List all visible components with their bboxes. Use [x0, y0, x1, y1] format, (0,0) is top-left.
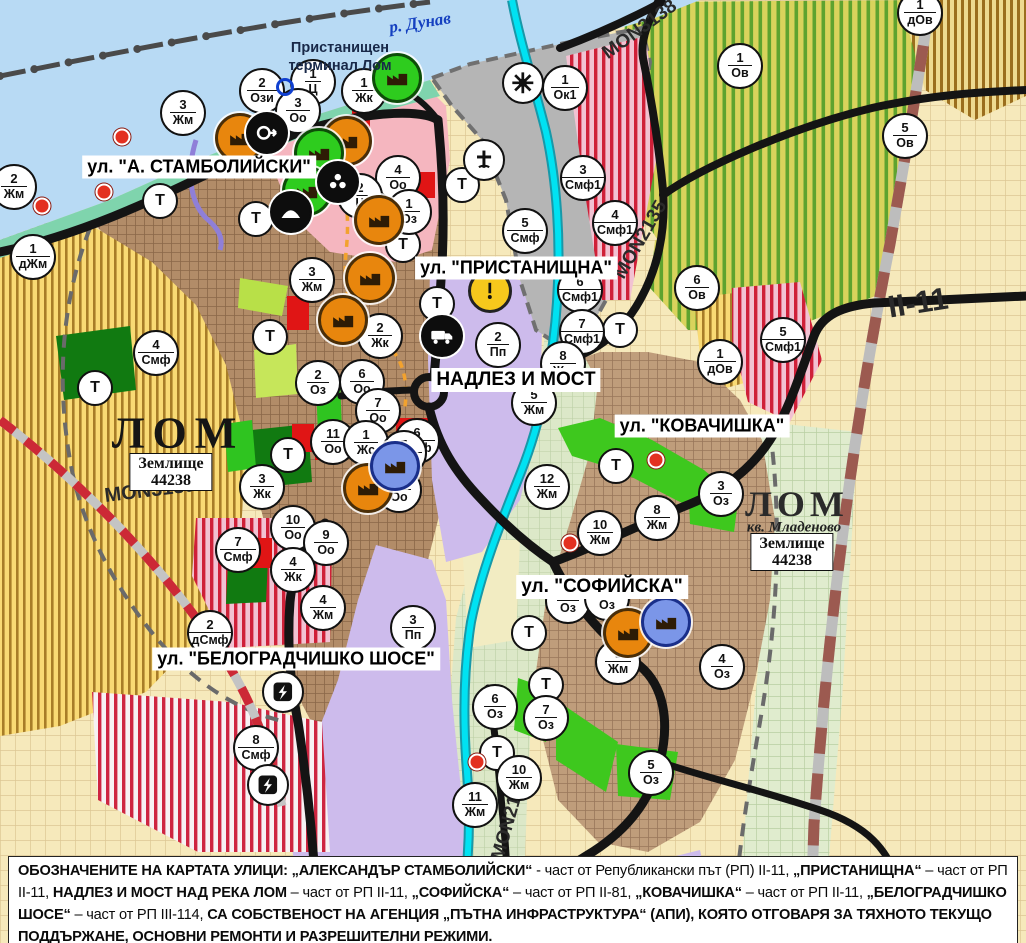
zone-marker-number: 11 — [468, 790, 482, 804]
zone-marker-code: Оз — [711, 666, 733, 682]
zone-marker-number: 3 — [294, 96, 301, 110]
zone-marker: 5Ов — [882, 113, 928, 159]
zone-marker-number: 3 — [179, 98, 186, 112]
zone-marker-code: Оз — [557, 600, 579, 616]
zone-marker: 4Смф1 — [592, 200, 638, 246]
zone-marker: 1Ов — [717, 43, 763, 89]
transport-marker: Т — [238, 201, 274, 237]
ownership-note-segment: „КОВАЧИШКА“ — [635, 885, 742, 901]
zone-marker-code: Жм — [170, 112, 197, 128]
zone-marker: 1дОв — [897, 0, 943, 36]
zone-marker-number: 4 — [152, 338, 159, 352]
zone-marker-number: 7 — [234, 535, 241, 549]
zone-marker-code: Ов — [893, 135, 916, 151]
zone-marker-code: Оо — [314, 542, 337, 558]
street-label: ул. "КОВАЧИШКА" — [615, 415, 790, 438]
transport-marker: Т — [598, 448, 634, 484]
land-unit-box-east: Землище 44238 — [750, 533, 833, 571]
zone-marker-number: 8 — [252, 733, 259, 747]
zone-marker-number: 5 — [521, 216, 528, 230]
zone-marker-number: 1 — [716, 347, 723, 361]
red-dot-icon — [562, 535, 579, 552]
ownership-note-segment: „ПРИСТАНИЩНА“ — [793, 863, 921, 879]
red-dot-icon — [648, 452, 665, 469]
zone-marker-code: Ов — [685, 287, 708, 303]
street-label: ул. "А. СТАМБОЛИЙСКИ" — [82, 156, 316, 179]
factory-orange-icon — [354, 195, 404, 245]
zone-marker-number: 4 — [718, 652, 725, 666]
zone-marker-number: 7 — [374, 396, 381, 410]
zone-marker: 10Жм — [496, 755, 542, 801]
road-number-label: MON3138 — [599, 0, 682, 64]
land-unit-east-line2: 44238 — [759, 552, 824, 569]
zone-marker-number: 2 — [494, 330, 501, 344]
ownership-note-segment: НАДЛЕЗ И МОСТ НАД РЕКА ЛОМ — [53, 885, 287, 901]
zone-marker-number: 5 — [901, 121, 908, 135]
zone-marker-number: 3 — [717, 479, 724, 493]
zone-marker-code: дОв — [704, 361, 735, 377]
zone-marker-code: Смф — [220, 549, 255, 565]
land-unit-east-line1: Землище — [759, 535, 824, 552]
ownership-note-segment: – част от РП III-114, — [71, 907, 208, 923]
ownership-note-segment: „СОФИЙСКА“ — [412, 885, 510, 901]
factory-orange-icon — [345, 253, 395, 303]
city-lom-label: ЛОМ — [112, 408, 245, 459]
zone-marker-code: Оз — [640, 772, 662, 788]
land-unit-west-line1: Землище — [138, 455, 203, 472]
zone-marker-code: Оз — [484, 706, 506, 722]
zone-marker-number: 2 — [314, 368, 321, 382]
street-label: ул. "ПРИСТАНИЩНА" — [415, 257, 617, 280]
street-label: НАДЛЕЗ И МОСТ — [431, 368, 600, 392]
arrow-icon — [246, 112, 288, 154]
zone-marker: 7Оз — [523, 695, 569, 741]
zone-marker-number: 1 — [362, 428, 369, 442]
zone-marker-number: 2 — [258, 76, 265, 90]
zone-marker-code: Оо — [286, 110, 309, 126]
truck-icon — [421, 315, 463, 357]
zone-marker-number: 11 — [326, 427, 340, 441]
zone-marker-number: 1 — [405, 197, 412, 211]
ownership-note: ОБОЗНАЧЕНИТЕ НА КАРТАТА УЛИЦИ: „АЛЕКСАНД… — [8, 856, 1018, 943]
zone-marker-code: Пп — [487, 344, 510, 360]
zone-marker-code: Оо — [321, 441, 344, 457]
port-terminal-label: Пристанищен терминал Лом — [288, 39, 391, 75]
zone-marker-number: 1 — [360, 76, 367, 90]
zone-marker: 3Оз — [698, 471, 744, 517]
zone-marker-code: Жм — [299, 279, 326, 295]
zone-marker: 4Жм — [300, 585, 346, 631]
zone-marker: 1Ок1 — [542, 65, 588, 111]
zone-marker: 4Жк — [270, 547, 316, 593]
zone-marker-number: 6 — [491, 692, 498, 706]
map-canvas[interactable]: р. Дунав Пристанищен терминал Лом ЛОМ ЛО… — [0, 0, 1026, 943]
zone-marker: 12Жм — [524, 464, 570, 510]
zone-marker-code: Пп — [402, 627, 425, 643]
transport-marker: Т — [252, 319, 288, 355]
zone-marker-number: 10 — [286, 513, 300, 527]
zone-marker: 2Пп — [475, 322, 521, 368]
zone-marker: 3Жк — [239, 464, 285, 510]
sun-icon — [502, 62, 544, 104]
zone-marker-code: Жк — [352, 90, 376, 106]
zone-marker-code: Жм — [534, 486, 561, 502]
zone-marker-code: Жк — [281, 569, 305, 585]
zone-marker: 2Оз — [295, 360, 341, 406]
zone-marker-code: дЖм — [16, 256, 50, 272]
transport-marker: Т — [77, 370, 113, 406]
zone-marker-code: Жк — [368, 335, 392, 351]
zone-marker-code: Смф1 — [594, 222, 636, 238]
zone-marker-code: Жм — [1, 186, 28, 202]
road-number-label: II-11 — [885, 281, 950, 326]
zone-marker: 3Пп — [390, 605, 436, 651]
ownership-note-segment: – част от РП II-11, — [742, 885, 867, 901]
zone-marker-code: Оз — [307, 382, 329, 398]
zone-marker: 1дЖм — [10, 234, 56, 280]
zone-marker-number: 6 — [693, 273, 700, 287]
zone-marker-code: Смф — [238, 747, 273, 763]
zone-marker: 3Смф1 — [560, 155, 606, 201]
zone-marker: 4Смф — [133, 330, 179, 376]
zone-marker-number: 3 — [308, 265, 315, 279]
zone-marker-number: 5 — [779, 325, 786, 339]
zone-marker-code: Жм — [605, 661, 632, 677]
zone-marker-code: Смф1 — [562, 177, 604, 193]
zone-marker-code: Жм — [521, 402, 548, 418]
port-terminal-line2: терминал Лом — [288, 57, 391, 75]
zone-marker-number: 3 — [258, 472, 265, 486]
zone-marker-number: 7 — [578, 317, 585, 331]
zone-marker-number: 1 — [561, 73, 568, 87]
zone-marker: 5Смф1 — [760, 317, 806, 363]
zone-marker-code: Жк — [250, 486, 274, 502]
zone-marker-code: Жм — [506, 777, 533, 793]
zone-marker-code: Оо — [281, 527, 304, 543]
zone-marker-code: Смф — [507, 230, 542, 246]
zone-marker: 5Оз — [628, 750, 674, 796]
street-label: ул. "СОФИЙСКА" — [516, 575, 688, 599]
transport-marker: Т — [602, 312, 638, 348]
red-dot-icon — [34, 198, 51, 215]
ownership-note-segment: - част от Републикански път (РП) II-11, — [532, 863, 793, 879]
red-dot-icon — [96, 184, 113, 201]
lightning-icon — [247, 764, 289, 806]
zone-marker-number: 5 — [647, 758, 654, 772]
chevron-icon — [270, 191, 312, 233]
zone-marker-number: 8 — [559, 349, 566, 363]
zone-marker-number: 1 — [29, 242, 36, 256]
zone-marker-number: 2 — [376, 321, 383, 335]
zone-marker-number: 10 — [593, 518, 607, 532]
zone-marker: 11Жм — [452, 782, 498, 828]
zone-marker-code: дСмф — [189, 632, 232, 648]
zone-marker-number: 2 — [206, 618, 213, 632]
zone-marker: 3Жм — [289, 257, 335, 303]
zone-marker-code: Жм — [462, 804, 489, 820]
zone-marker-code: Оз — [710, 493, 732, 509]
zone-marker: 5Смф — [502, 208, 548, 254]
red-dot-icon — [114, 129, 131, 146]
zone-marker-code: Ов — [728, 65, 751, 81]
zone-marker: 6Ов — [674, 265, 720, 311]
zone-marker-code: дОв — [904, 12, 935, 28]
blue-ring-icon — [276, 78, 294, 96]
zone-marker-number: 8 — [653, 503, 660, 517]
zone-marker: 1дОв — [697, 339, 743, 385]
zone-marker: 10Жм — [577, 510, 623, 556]
zone-marker-code: Смф — [138, 352, 173, 368]
ownership-note-segment: ОБОЗНАЧЕНИТЕ НА КАРТАТА УЛИЦИ: „АЛЕКСАНД… — [18, 863, 532, 879]
zone-marker-number: 6 — [358, 367, 365, 381]
zone-marker-code: Ози — [247, 90, 277, 106]
red-dot-icon — [469, 754, 486, 771]
zone-marker-number: 2 — [10, 172, 17, 186]
zone-marker-number: 1 — [916, 0, 923, 12]
zone-marker: 8Жм — [634, 495, 680, 541]
zone-marker-number: 12 — [540, 472, 554, 486]
zone-marker-number: 4 — [394, 163, 401, 177]
zone-marker-number: 1 — [736, 51, 743, 65]
zone-marker: 2Жм — [0, 164, 37, 210]
zone-marker-number: 4 — [289, 555, 296, 569]
zone-marker: 3Жм — [160, 90, 206, 136]
zone-marker-code: Жм — [587, 532, 614, 548]
ownership-note-segment: – част от РП II-11, — [287, 885, 412, 901]
zone-marker: 4Оз — [699, 644, 745, 690]
zone-marker: 7Смф — [215, 527, 261, 573]
zone-marker: 6Оз — [472, 684, 518, 730]
factory-blue-icon — [370, 441, 420, 491]
cross-icon — [463, 139, 505, 181]
zone-marker-code: Смф1 — [559, 289, 601, 305]
lightning-icon — [262, 671, 304, 713]
land-unit-west-line2: 44238 — [138, 472, 203, 489]
factory-blue-icon — [641, 597, 691, 647]
zone-marker-code: Смф1 — [762, 339, 804, 355]
zone-marker-number: 7 — [542, 703, 549, 717]
zone-marker-number: 9 — [322, 528, 329, 542]
zone-marker-code: Оз — [535, 717, 557, 733]
zone-marker-code: Жм — [310, 607, 337, 623]
zone-marker-number: 4 — [319, 593, 326, 607]
factory-orange-icon — [318, 295, 368, 345]
zone-marker-number: 3 — [409, 613, 416, 627]
zone-marker-number: 4 — [611, 208, 618, 222]
ownership-note-segment: – част от РП II-81, — [509, 885, 635, 901]
zone-marker-code: Жм — [644, 517, 671, 533]
zone-marker-number: 10 — [512, 763, 526, 777]
person-icon — [317, 161, 359, 203]
street-label: ул. "БЕЛОГРАДЧИШКО ШОСЕ" — [152, 648, 440, 671]
transport-marker: Т — [142, 183, 178, 219]
zone-marker-number: 3 — [579, 163, 586, 177]
zone-marker-code: Ок1 — [551, 87, 580, 103]
transport-marker: Т — [511, 615, 547, 651]
land-unit-box-west: Землище 44238 — [129, 453, 212, 491]
port-terminal-line1: Пристанищен — [288, 39, 391, 57]
